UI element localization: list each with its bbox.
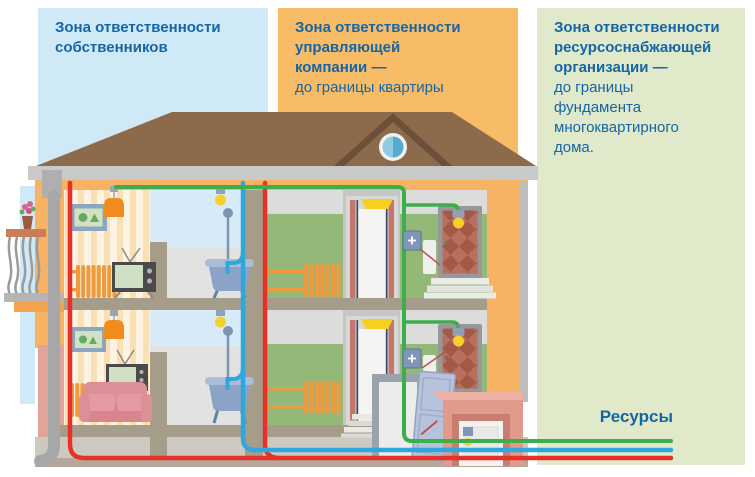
electric-panel-icon-floor1 xyxy=(403,349,421,368)
bathroom-lamp-icon-floor1 xyxy=(215,309,226,328)
elevator-lamp-icon xyxy=(361,199,393,209)
elevator-lamp-icon xyxy=(361,319,393,329)
elevator-floor2 xyxy=(346,196,398,298)
resources-label: Ресурсы xyxy=(555,407,673,427)
sofa xyxy=(79,382,152,422)
cornice xyxy=(28,166,538,180)
entrance-porch xyxy=(433,392,523,466)
utility-responsibility-infographic: Зона ответственности собственников Зона … xyxy=(0,0,755,477)
roof xyxy=(36,112,536,166)
picture-frame-floor1 xyxy=(71,327,106,352)
electric-panel-icon-floor2 xyxy=(403,231,421,250)
balcony-shelf xyxy=(6,229,46,237)
door-knob-icon xyxy=(445,241,449,245)
picture-frame-floor2 xyxy=(70,204,107,231)
attic-window-icon xyxy=(379,133,407,161)
bathroom-lamp-icon-floor2 xyxy=(215,187,226,206)
house-illustration xyxy=(0,0,755,477)
door-knob-icon xyxy=(445,356,449,360)
elevator-door xyxy=(359,209,386,298)
porch-lamp-icon xyxy=(463,427,473,436)
